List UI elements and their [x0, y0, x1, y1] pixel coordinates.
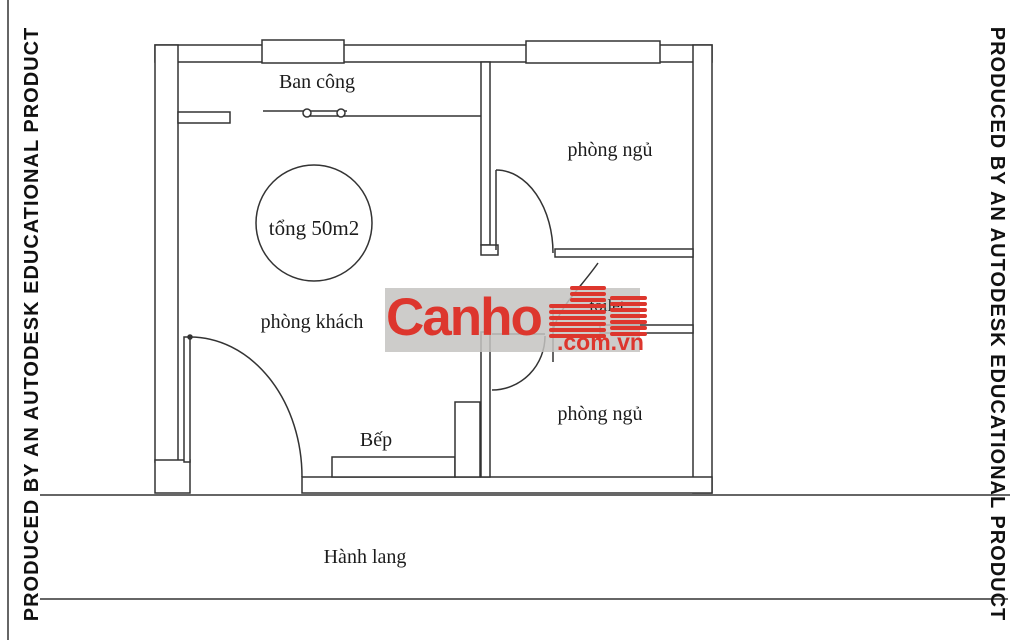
brand-watermark-name: Canho	[386, 293, 541, 343]
left-wall	[155, 45, 178, 462]
label-living-room: phòng khách	[261, 311, 364, 333]
kitchen-unit	[455, 402, 480, 477]
right-wall	[693, 45, 712, 493]
sliding-door-knob-2	[337, 109, 345, 117]
entry-door-arc	[190, 337, 302, 477]
label-hallway: Hành lang	[324, 546, 407, 568]
window-1	[262, 40, 344, 63]
entry-wall-cap	[155, 460, 190, 493]
partition-wall-lower	[481, 332, 490, 477]
bottom-wall	[302, 477, 712, 493]
label-bedroom-bottom: phòng ngủ	[558, 403, 643, 425]
bedroom-top-door-arc	[496, 170, 553, 253]
partition-wall-upper	[481, 62, 490, 245]
entry-door-leaf	[184, 337, 190, 462]
autodesk-watermark-right: PRODUCED BY AN AUTODESK EDUCATIONAL PROD…	[985, 4, 1009, 640]
label-total-area: tổng 50m2	[269, 217, 359, 239]
label-kitchen: Bếp	[360, 429, 392, 451]
bedroom-top-wall	[555, 249, 693, 257]
label-bedroom-top: phòng ngủ	[568, 139, 653, 161]
balcony-rail	[178, 112, 230, 123]
floor-plan-page: Ban công phòng ngủ tổng 50m2 phòng khách…	[0, 0, 1024, 640]
label-balcony: Ban công	[279, 71, 355, 93]
kitchen-counter	[332, 457, 455, 477]
autodesk-watermark-left: PRODUCED BY AN AUTODESK EDUCATIONAL PROD…	[20, 4, 44, 640]
sliding-door-knob-1	[303, 109, 311, 117]
window-2	[526, 41, 660, 63]
brand-watermark-suffix: .com.vn	[557, 331, 644, 354]
